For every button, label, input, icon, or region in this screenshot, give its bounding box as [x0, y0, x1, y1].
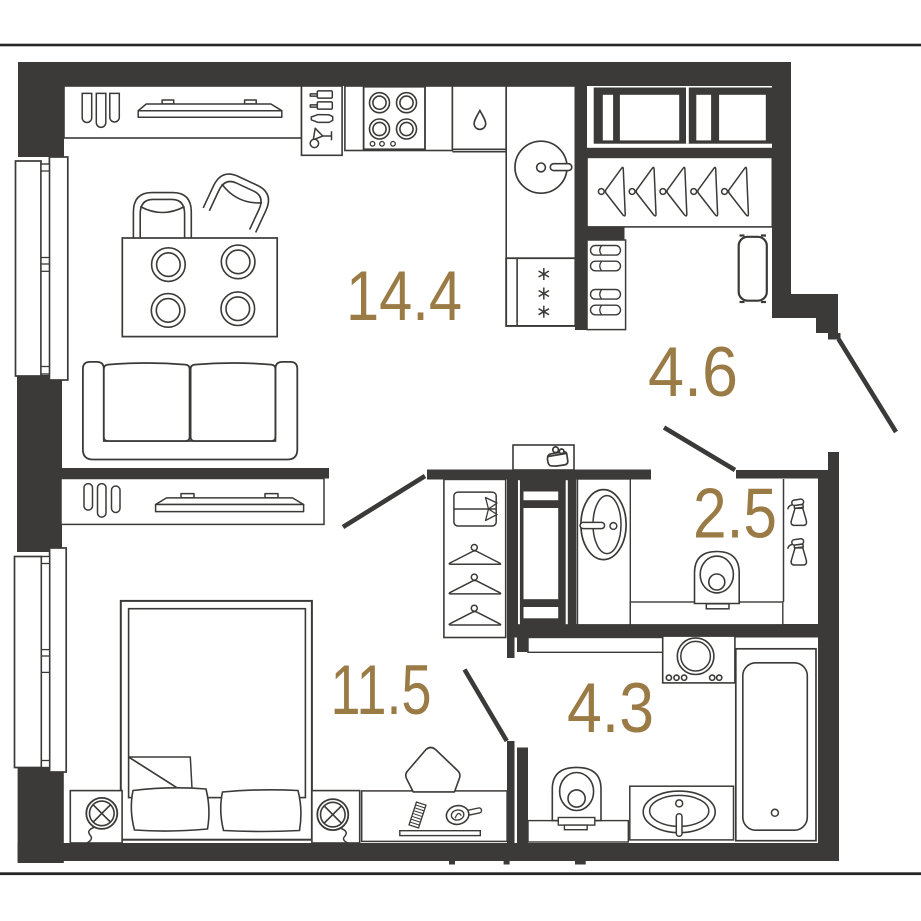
svg-text:2.5: 2.5	[693, 474, 777, 553]
svg-text:4.6: 4.6	[648, 332, 738, 411]
svg-text:14.4: 14.4	[346, 256, 462, 335]
svg-text:11.5: 11.5	[331, 650, 432, 729]
svg-text:4.3: 4.3	[567, 668, 654, 747]
